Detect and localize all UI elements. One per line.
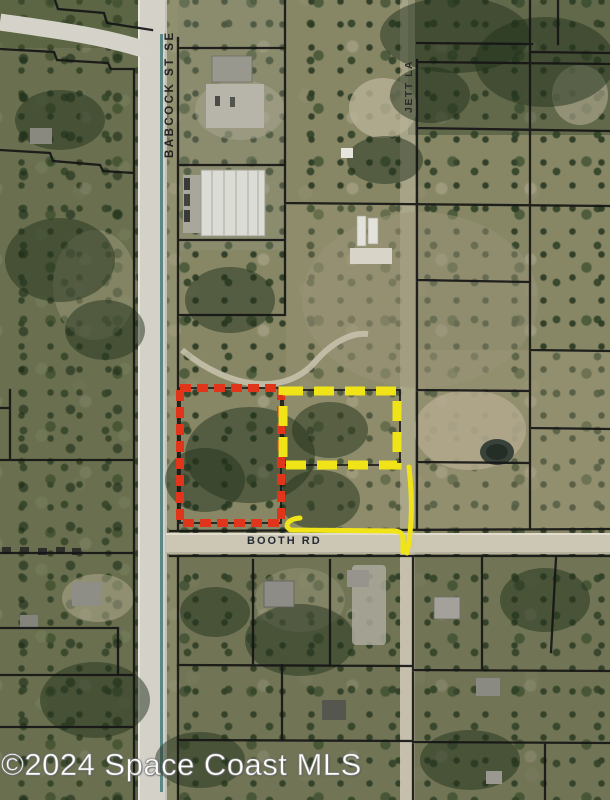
road-label-booth: BOOTH RD [247,535,322,547]
trailer [368,218,378,244]
parking-lot [206,84,264,128]
jett-lane-south-segment [400,554,414,800]
jett-lane-corridor [400,0,415,800]
access-path-booth-rd [287,518,403,552]
clearings [53,65,608,632]
parcel-lines-west [0,0,152,800]
parcel-lines-south [178,556,610,800]
road-label-jett: JETT LA [403,60,415,113]
aerial-parcel-map: BABCOCK ST SE JETT LA BOOTH RD ©2024 Spa… [0,0,610,800]
forest-region-topleft [0,0,150,48]
pasture-region-right [418,350,610,530]
house [347,570,369,587]
house [20,615,38,629]
map-overlay-graphics [0,0,610,800]
parcel-lines-east [170,0,610,800]
curved-road-topleft [0,22,152,52]
trailer [357,216,366,246]
adjacent-parcel-outline-yellow [283,391,397,465]
buildings [2,56,514,784]
booth-road [166,533,610,554]
access-path-jett-ln [407,467,411,553]
babcock-street-road [138,0,167,800]
house [322,700,346,720]
mls-watermark: ©2024 Space Coast MLS [1,747,362,783]
forest-region-west [0,0,138,800]
pond [480,439,514,465]
highlighted-parcel-boundaries [180,388,400,523]
aerial-basemap [0,0,610,800]
tree-clusters [5,0,610,790]
industrial-warehouse [201,170,265,236]
road-shoulder [166,0,178,800]
small-building [341,148,353,158]
dirt-trail [182,334,368,384]
pasture-region-middle [286,205,414,530]
forest-region-topright [408,0,610,135]
road-label-babcock: BABCOCK ST SE [164,30,176,158]
concrete-pad [350,248,392,264]
house [476,678,500,696]
subject-parcel-outline-red [180,388,281,523]
house [30,128,52,144]
roadside-canal-line [160,34,163,792]
house [434,597,460,619]
house [72,582,102,606]
parcel-boundaries [0,0,610,800]
house [486,771,502,784]
industrial-region [178,0,286,250]
warehouse-building [212,56,252,82]
residential-region-south [133,556,610,800]
driveway [352,565,386,645]
loading-area [183,175,201,233]
house [264,581,294,607]
